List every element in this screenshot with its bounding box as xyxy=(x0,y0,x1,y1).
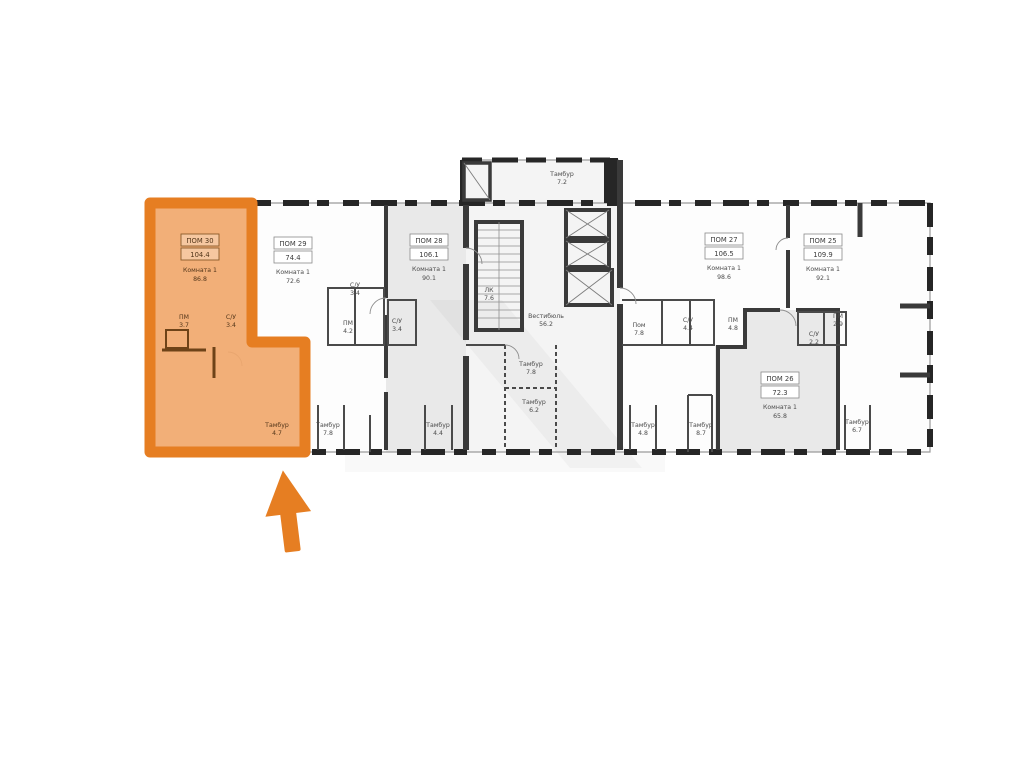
room-label: Тамбур xyxy=(521,398,546,406)
floor-plan: ПОМ 30 104.4 Комната 1 86.8 ПМ 3.7 С/У 3… xyxy=(0,0,1024,768)
room-area: 7.8 xyxy=(526,369,536,376)
room-label: Тамбур xyxy=(518,360,543,368)
room-label: Тамбур xyxy=(688,421,713,429)
room-label: С/У xyxy=(226,314,236,321)
unit-25-area-label: 109.9 xyxy=(813,251,832,259)
room-label: Вестибюль xyxy=(528,312,564,320)
screenshot-canvas: ПОМ 30 104.4 Комната 1 86.8 ПМ 3.7 С/У 3… xyxy=(0,0,1024,768)
room-label: Тамбур xyxy=(425,421,450,429)
room-label: Тамбур xyxy=(315,421,340,429)
room-label: Тамбур xyxy=(630,421,655,429)
room-area: 7.8 xyxy=(323,430,333,437)
room-area: 3.7 xyxy=(179,322,189,329)
room-area: 72.6 xyxy=(286,278,300,285)
room-label: ПМ xyxy=(728,317,738,324)
room-area: 2.2 xyxy=(809,339,819,346)
room-area: 98.6 xyxy=(717,274,731,281)
room-area: 3.4 xyxy=(350,290,360,297)
room-area: 90.1 xyxy=(422,275,436,282)
unit-27-area-label: 106.5 xyxy=(714,250,733,258)
room-label: Комната 1 xyxy=(806,266,840,273)
room-label: Пом xyxy=(632,322,645,329)
room-area: 56.2 xyxy=(539,321,553,328)
room-area: 8.7 xyxy=(696,430,706,437)
room-area: 3.4 xyxy=(392,326,402,333)
room-label: Комната 1 xyxy=(183,267,217,274)
room-area: 4.4 xyxy=(433,430,443,437)
room-area: 92.1 xyxy=(816,275,830,282)
room-area: 4.7 xyxy=(272,430,282,437)
room-area: 2.9 xyxy=(833,321,843,328)
room-label: Тамбур xyxy=(844,418,869,426)
room-label: Комната 1 xyxy=(276,269,310,276)
room-area: 4.8 xyxy=(638,430,648,437)
room-label: С/У xyxy=(809,331,819,338)
room-area: 4.4 xyxy=(683,325,693,332)
room-area: 7.6 xyxy=(484,295,494,302)
room-label: Комната 1 xyxy=(763,404,797,411)
room-label: ПМ xyxy=(343,320,353,327)
room-area: 4.8 xyxy=(728,325,738,332)
room-label: С/У xyxy=(683,317,693,324)
room-area: 65.8 xyxy=(773,413,787,420)
room-area: 3.4 xyxy=(226,322,236,329)
room-label: ЛК xyxy=(484,287,494,294)
room-label: С/У xyxy=(392,318,402,325)
unit-28-area-label: 106.1 xyxy=(419,251,438,259)
room-label: ПМ xyxy=(833,313,843,320)
unit-27-number-label: ПОМ 27 xyxy=(710,236,737,244)
unit-29-area-label: 74.4 xyxy=(285,254,300,262)
room-area: 6.7 xyxy=(852,427,862,434)
unit-30-number-label: ПОМ 30 xyxy=(186,237,213,245)
room-area: 86.8 xyxy=(193,276,207,283)
room-label: Комната 1 xyxy=(412,266,446,273)
room-area: 4.2 xyxy=(343,328,353,335)
unit-25-number-label: ПОМ 25 xyxy=(809,237,836,245)
pointer-arrow-icon xyxy=(260,468,316,555)
unit-29-number-label: ПОМ 29 xyxy=(279,240,306,248)
room-label: Тамбур xyxy=(264,421,289,429)
room-label: С/У xyxy=(350,282,360,289)
room-label: Тамбур xyxy=(549,170,574,178)
room-label: Комната 1 xyxy=(707,265,741,272)
room-area: 7.8 xyxy=(634,330,644,337)
room-area: 7.2 xyxy=(557,179,567,186)
unit-28-number-label: ПОМ 28 xyxy=(415,237,442,245)
unit-26-area-label: 72.3 xyxy=(772,389,787,397)
room-area: 6.2 xyxy=(529,407,539,414)
unit-30-area-label: 104.4 xyxy=(190,251,209,259)
unit-26-number-label: ПОМ 26 xyxy=(766,375,793,383)
room-label: ПМ xyxy=(179,314,189,321)
